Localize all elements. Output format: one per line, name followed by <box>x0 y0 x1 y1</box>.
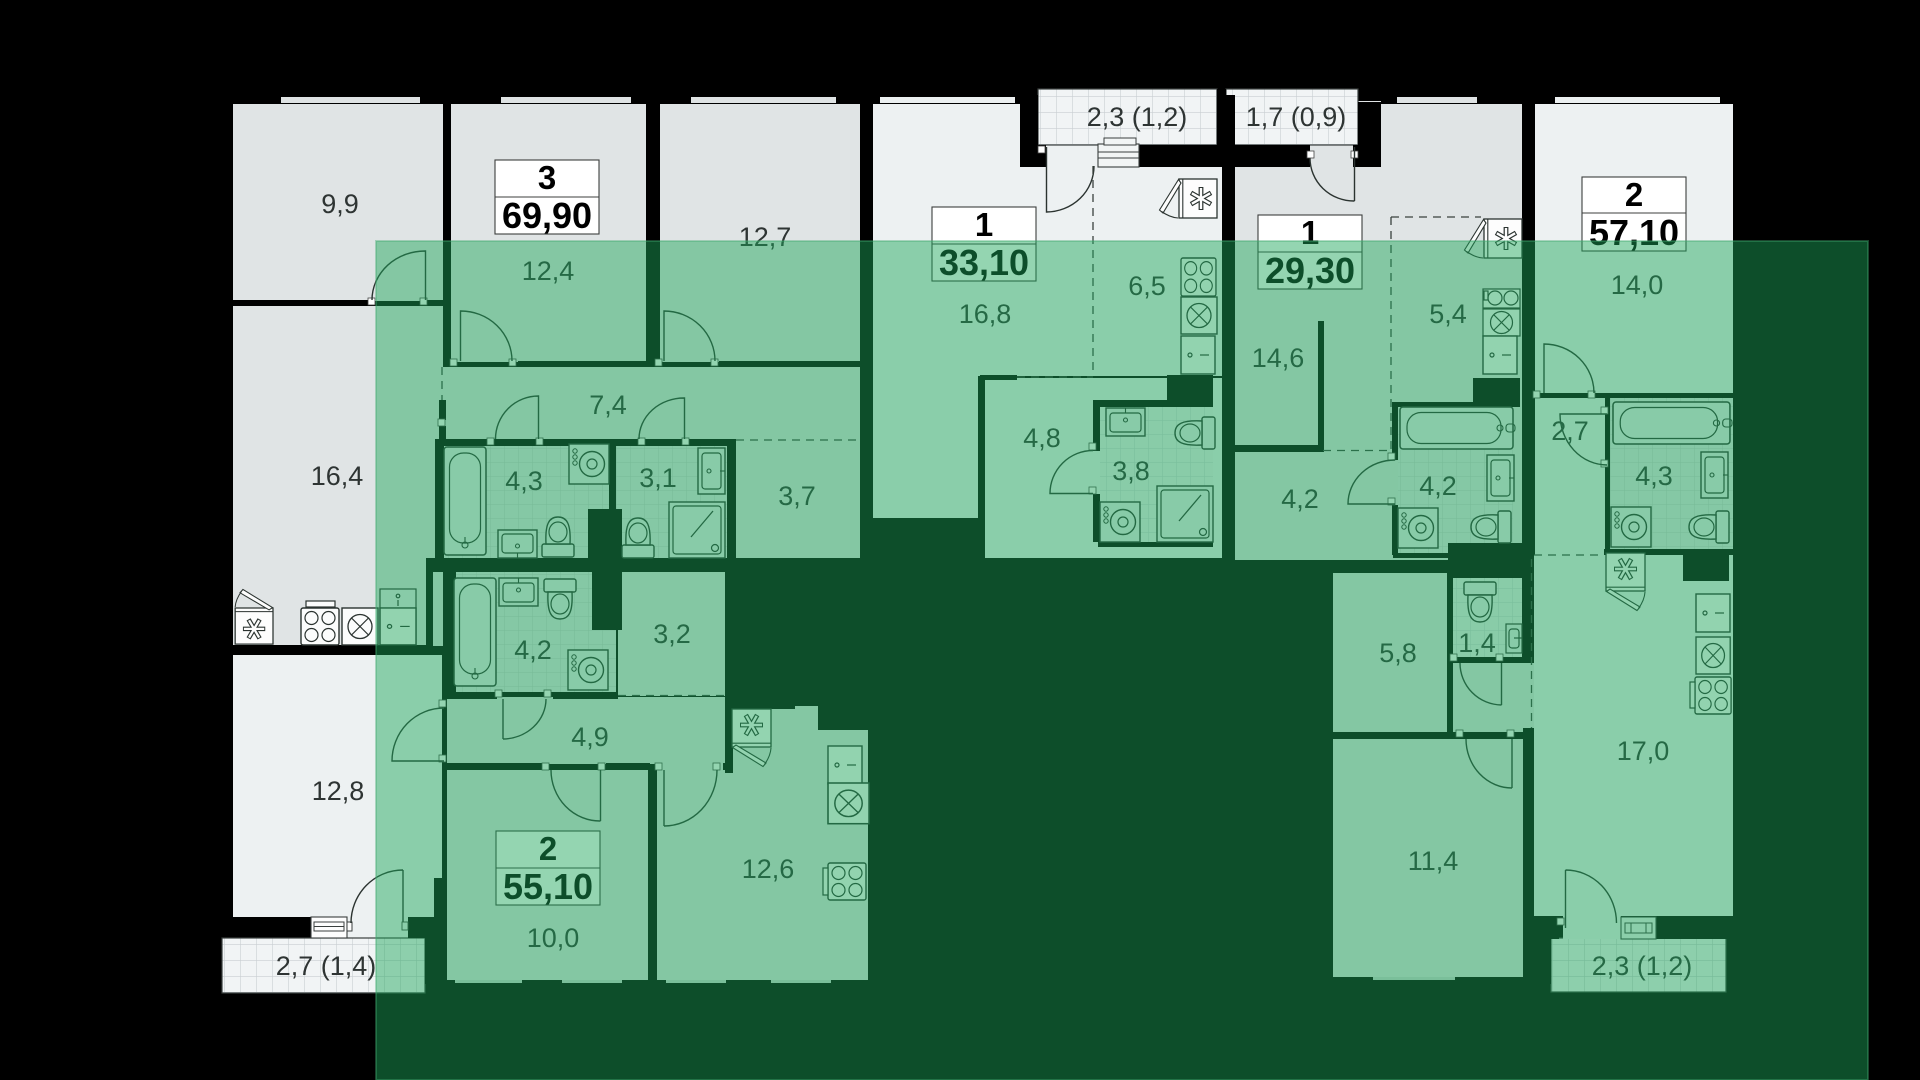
svg-text:69,90: 69,90 <box>502 195 592 236</box>
svg-text:1: 1 <box>975 206 993 243</box>
svg-text:12,8: 12,8 <box>312 776 365 806</box>
svg-text:9,9: 9,9 <box>321 189 359 219</box>
svg-text:2: 2 <box>1625 176 1643 213</box>
svg-text:16,4: 16,4 <box>311 461 364 491</box>
svg-text:3: 3 <box>538 159 556 196</box>
svg-text:2,3 (1,2): 2,3 (1,2) <box>1087 102 1188 132</box>
svg-text:2,7 (1,4): 2,7 (1,4) <box>276 951 377 981</box>
svg-text:1,7 (0,9): 1,7 (0,9) <box>1246 102 1347 132</box>
